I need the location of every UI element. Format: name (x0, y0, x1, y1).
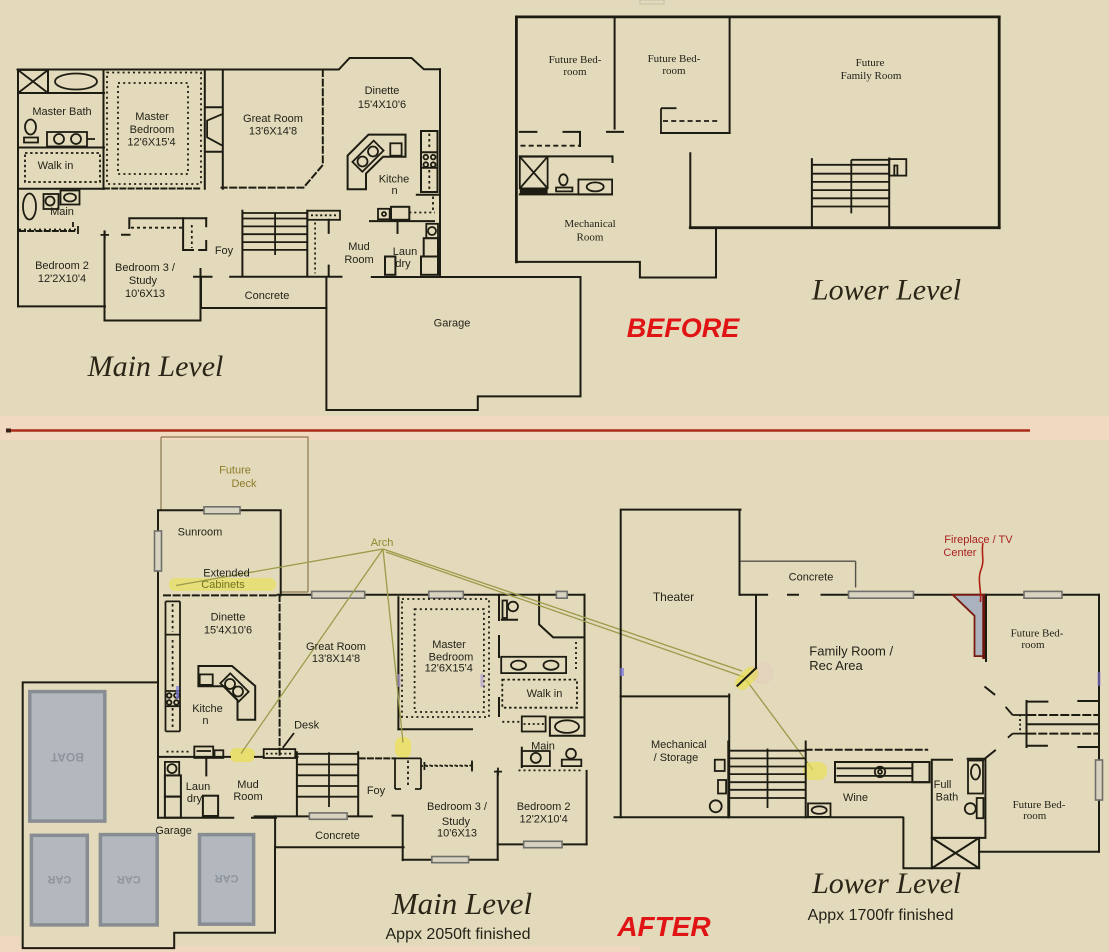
svg-text:Extended: Extended (203, 568, 249, 580)
svg-text:Lower Level: Lower Level (811, 274, 961, 307)
svg-text:n: n (202, 715, 208, 727)
svg-text:Kitche: Kitche (379, 174, 410, 186)
svg-text:Future Bed-: Future Bed- (549, 54, 602, 66)
svg-text:Great Room: Great Room (306, 641, 366, 653)
svg-text:Wine: Wine (843, 792, 868, 804)
svg-text:Room: Room (233, 791, 262, 803)
svg-text:15'4X10'6: 15'4X10'6 (204, 625, 252, 637)
svg-text:Future Bed-: Future Bed- (648, 53, 701, 65)
svg-text:Appx 1700fr finished: Appx 1700fr finished (808, 907, 954, 924)
svg-text:room: room (563, 66, 587, 78)
svg-text:Foy: Foy (215, 245, 234, 257)
svg-text:Walk in: Walk in (38, 160, 74, 172)
svg-text:Kitche: Kitche (192, 703, 223, 715)
svg-text:Walk in: Walk in (527, 688, 563, 700)
svg-text:Mechanical: Mechanical (651, 739, 707, 751)
svg-text:12'2X10'4: 12'2X10'4 (38, 273, 86, 285)
svg-text:Dinette: Dinette (365, 85, 400, 97)
svg-text:CAR: CAR (47, 873, 71, 885)
svg-text:Future: Future (856, 57, 885, 69)
svg-text:Sunroom: Sunroom (178, 527, 223, 539)
svg-text:Family Room /: Family Room / (809, 644, 893, 659)
svg-text:Master: Master (135, 111, 169, 123)
svg-text:Garage: Garage (155, 825, 192, 837)
svg-text:dry: dry (187, 793, 203, 805)
svg-text:Future: Future (219, 465, 251, 477)
svg-text:Rec Area: Rec Area (809, 658, 863, 673)
svg-text:Foy: Foy (367, 785, 386, 797)
svg-text:Bath: Bath (936, 792, 959, 804)
svg-text:Garage: Garage (434, 318, 471, 330)
svg-text:Main: Main (50, 206, 74, 218)
svg-text:Family Room: Family Room (841, 70, 902, 82)
svg-text:12'6X15'4: 12'6X15'4 (127, 137, 175, 149)
svg-text:Cabinets: Cabinets (201, 579, 245, 591)
svg-text:Future Bed-: Future Bed- (1011, 628, 1064, 640)
svg-text:Laun: Laun (186, 781, 210, 793)
svg-text:dry: dry (395, 258, 411, 270)
svg-text:Bedroom 2: Bedroom 2 (35, 260, 89, 272)
svg-text:room: room (1021, 639, 1045, 651)
svg-text:Great Room: Great Room (243, 113, 303, 125)
svg-text:n: n (391, 185, 397, 197)
svg-text:Center: Center (943, 547, 976, 559)
svg-text:Mud: Mud (348, 241, 369, 253)
svg-text:13'6X14'8: 13'6X14'8 (249, 126, 297, 138)
svg-text:15'4X10'6: 15'4X10'6 (358, 99, 406, 111)
svg-text:Mechanical: Mechanical (564, 218, 615, 230)
svg-text:10'6X13: 10'6X13 (437, 828, 477, 840)
svg-text:Concrete: Concrete (315, 830, 360, 842)
svg-text:/ Storage: / Storage (654, 752, 699, 764)
svg-text:Main: Main (531, 741, 555, 753)
svg-text:Dinette: Dinette (211, 612, 246, 624)
svg-text:12'2X10'4: 12'2X10'4 (519, 814, 567, 826)
svg-text:Study: Study (129, 275, 158, 287)
svg-text:Theater: Theater (653, 590, 694, 604)
svg-text:Laun: Laun (393, 246, 417, 258)
svg-text:Desk: Desk (294, 720, 320, 732)
svg-text:Concrete: Concrete (789, 572, 834, 584)
svg-text:Appx 2050ft finished: Appx 2050ft finished (386, 926, 531, 943)
svg-text:CAR: CAR (117, 873, 141, 885)
svg-text:BOAT: BOAT (50, 750, 84, 764)
svg-text:Main Level: Main Level (391, 886, 532, 921)
svg-text:room: room (662, 65, 686, 77)
svg-text:Master: Master (432, 639, 466, 651)
svg-text:13'8X14'8: 13'8X14'8 (312, 653, 360, 665)
svg-text:Arch: Arch (371, 537, 394, 549)
svg-text:Bedroom 3 /: Bedroom 3 / (115, 262, 176, 274)
svg-text:Main Level: Main Level (87, 350, 224, 383)
svg-text:CAR: CAR (215, 872, 239, 884)
svg-text:room: room (1023, 810, 1047, 822)
svg-text:12'6X15'4: 12'6X15'4 (425, 663, 473, 675)
svg-text:BEFORE: BEFORE (627, 313, 741, 343)
svg-text:Bedroom 3 /: Bedroom 3 / (427, 801, 488, 813)
svg-text:Room: Room (577, 232, 604, 244)
svg-text:Fireplace / TV: Fireplace / TV (944, 534, 1013, 546)
svg-text:Concrete: Concrete (245, 290, 290, 302)
svg-text:Mud: Mud (237, 779, 258, 791)
svg-text:Full: Full (934, 779, 952, 791)
svg-text:Deck: Deck (231, 478, 257, 490)
svg-text:10'6X13: 10'6X13 (125, 288, 165, 300)
svg-text:Master Bath: Master Bath (32, 106, 91, 118)
svg-text:Lower Level: Lower Level (811, 867, 961, 900)
svg-text:Room: Room (344, 254, 373, 266)
svg-text:AFTER: AFTER (616, 911, 711, 942)
svg-text:Bedroom 2: Bedroom 2 (517, 801, 571, 813)
svg-text:Study: Study (442, 816, 471, 828)
svg-text:Bedroom: Bedroom (130, 124, 175, 136)
